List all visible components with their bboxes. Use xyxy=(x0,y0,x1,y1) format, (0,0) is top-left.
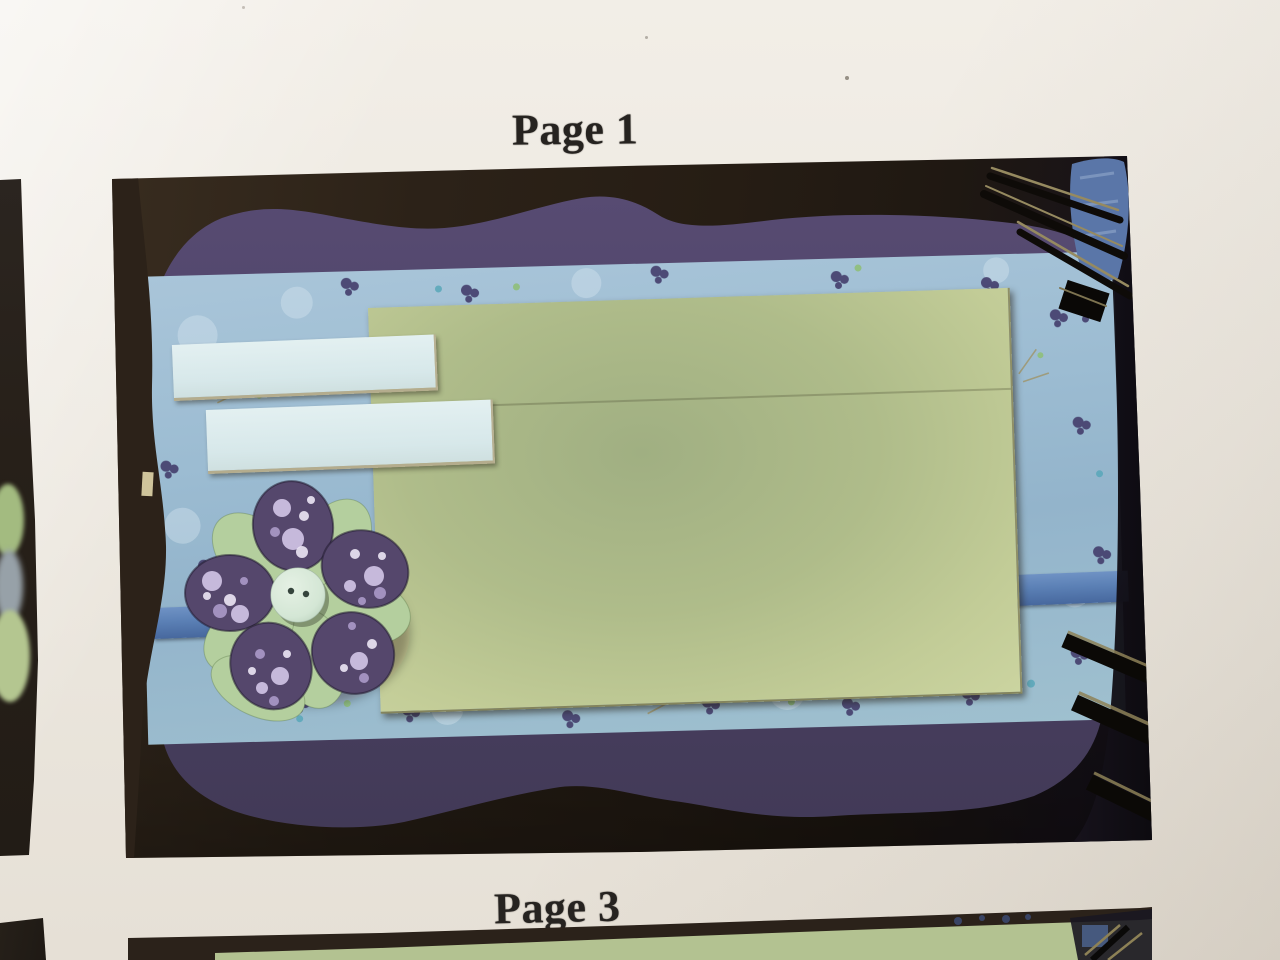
dust-speck xyxy=(645,36,648,39)
left-shadow-band xyxy=(112,176,166,859)
flower-embellishment xyxy=(185,475,419,735)
green-paper-fragment xyxy=(0,610,30,702)
photo-scrapbook-page-1 xyxy=(112,156,1153,860)
photo-fragment-left-edge xyxy=(0,178,40,858)
green-paper-fragment xyxy=(0,484,24,556)
printed-photo-sheet: Page 1 Page 3 xyxy=(0,0,1280,960)
dust-speck xyxy=(242,6,245,9)
button-hole xyxy=(288,588,294,594)
button-hole xyxy=(303,591,309,597)
page3-spiral-binding-icon xyxy=(1070,909,1152,960)
tan-speck xyxy=(141,472,153,497)
photo-fragment-bottom-left xyxy=(0,915,48,960)
embellishment-layer xyxy=(112,156,1153,860)
photo-scrapbook-page-3-partial xyxy=(120,905,1152,960)
dust-speck xyxy=(845,76,849,80)
page-1-label: Page 1 xyxy=(512,107,639,152)
